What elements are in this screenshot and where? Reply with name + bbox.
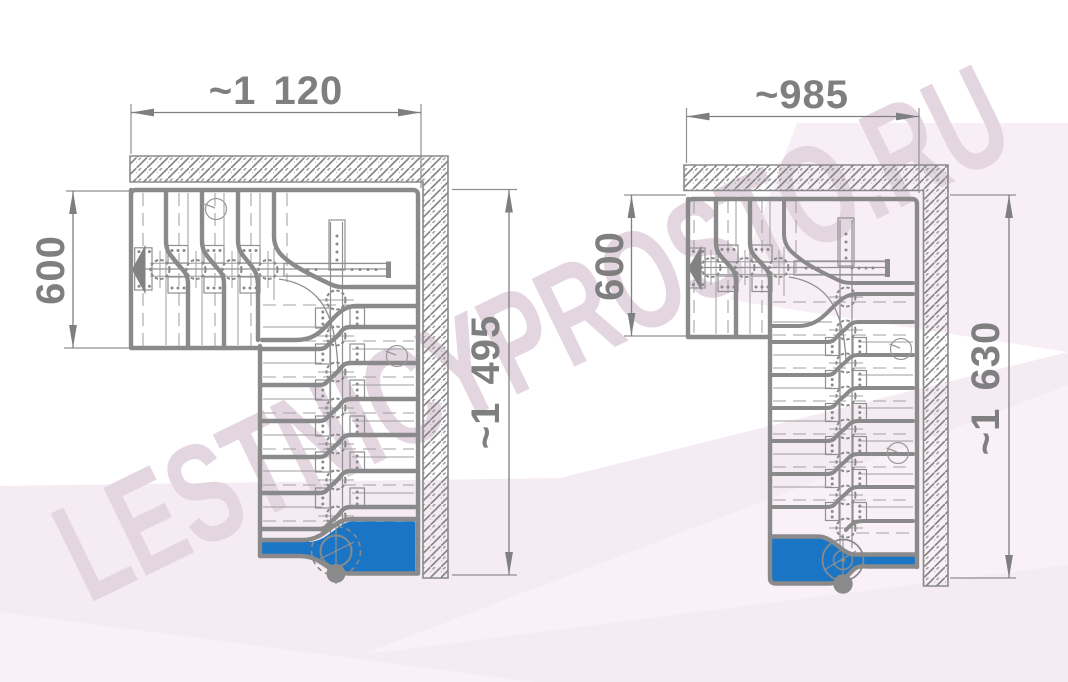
svg-text:~1 495: ~1 495 <box>464 315 508 449</box>
svg-text:~1 120: ~1 120 <box>209 69 343 113</box>
svg-text:~985: ~985 <box>755 73 849 117</box>
svg-text:600: 600 <box>588 231 632 301</box>
svg-text:~1 630: ~1 630 <box>964 321 1008 455</box>
svg-text:600: 600 <box>29 235 73 305</box>
